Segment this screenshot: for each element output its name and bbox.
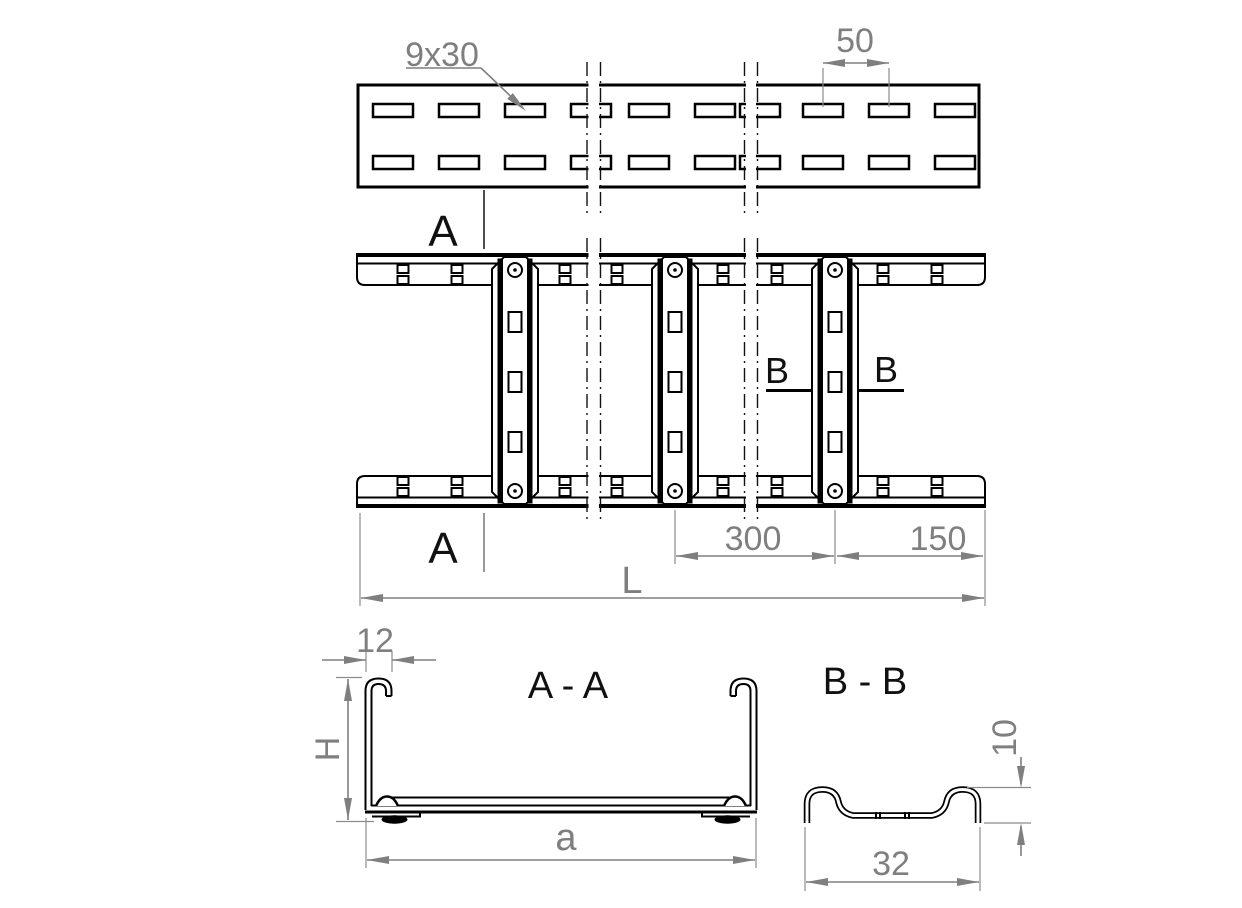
end-offset-dimension: 150 [837, 520, 983, 560]
section-b-label: B [874, 349, 898, 390]
technical-drawing-page: 9x30 50 A [0, 0, 1242, 908]
rung-height-label: 10 [986, 719, 1024, 757]
section-a-label: A [428, 207, 458, 256]
rivet-head-left [382, 815, 408, 823]
height-label: H [309, 737, 347, 762]
break-gap [589, 248, 600, 512]
slot-size-callout: 9x30 [405, 36, 526, 111]
rung-spacing-label: 300 [725, 520, 782, 558]
slot-pitch-dimension: 50 [823, 22, 889, 107]
section-b-label: B [765, 350, 789, 391]
length-label: L [621, 560, 642, 602]
rail-slots [373, 104, 975, 169]
section-mark-a-top: A [428, 190, 484, 256]
break-gap [746, 82, 756, 190]
rung-width-label: 32 [872, 845, 910, 883]
break-gap [589, 82, 600, 190]
lip-width-label: 12 [356, 622, 394, 660]
section-bb-title: B - B [823, 661, 907, 703]
section-aa-title: A - A [528, 665, 609, 707]
section-mark-a-bottom: A [428, 513, 484, 573]
section-bb-view: B - B 10 32 [805, 661, 1031, 891]
lip-width-dimension: 12 [322, 622, 436, 672]
height-dimension: H [309, 678, 374, 822]
rung-height-dimension: 10 [967, 719, 1031, 856]
rung [652, 257, 698, 504]
break-gap [746, 248, 756, 512]
plan-view-ladder: B B [356, 238, 986, 524]
section-mark-b-right: B [858, 349, 904, 391]
slot-pitch-label: 50 [836, 22, 874, 60]
section-mark-b-left: B [765, 350, 812, 391]
cable-ladder-drawing: 9x30 50 A [0, 0, 1242, 908]
width-dimension: a [366, 817, 756, 868]
section-a-label: A [428, 524, 458, 573]
rivet-head-right [715, 815, 741, 823]
section-aa-view: A - A 12 H [309, 622, 757, 868]
rung [492, 257, 538, 504]
rung-spacing-dimension: 300 [676, 520, 834, 560]
rail-outline [358, 85, 979, 187]
rung [812, 257, 858, 504]
rung-width-dimension: 32 [805, 827, 980, 891]
top-view-side-rail [358, 62, 979, 213]
end-offset-label: 150 [910, 520, 967, 558]
width-label: a [555, 817, 577, 859]
rung-profile-outer [807, 790, 978, 824]
